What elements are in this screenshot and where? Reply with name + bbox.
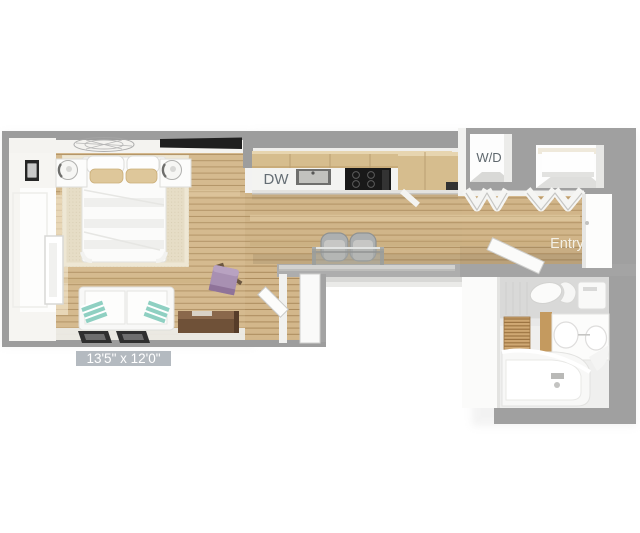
svg-text:DW: DW [264, 171, 290, 188]
svg-text:W/D: W/D [476, 150, 501, 165]
svg-text:Entry: Entry [550, 236, 585, 252]
svg-text:13'5" x 12'0": 13'5" x 12'0" [86, 351, 160, 366]
